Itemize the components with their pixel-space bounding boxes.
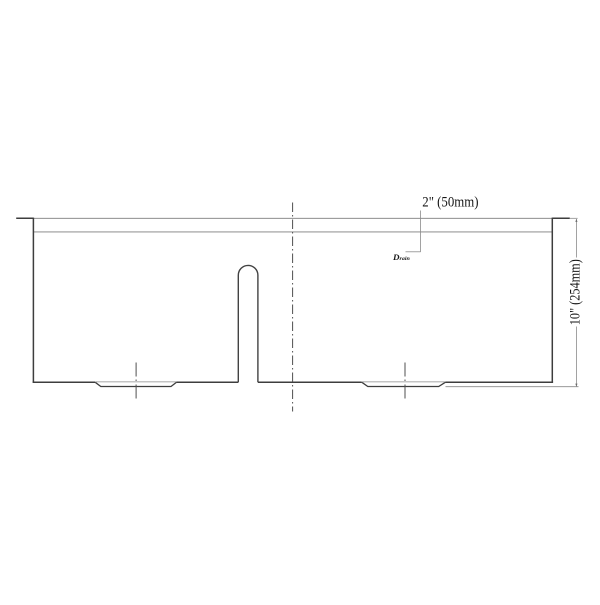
svg-text:10" (254mm): 10" (254mm) <box>568 259 584 325</box>
svg-text:Drain: Drain <box>392 252 410 262</box>
svg-text:2" (50mm): 2" (50mm) <box>422 195 478 211</box>
